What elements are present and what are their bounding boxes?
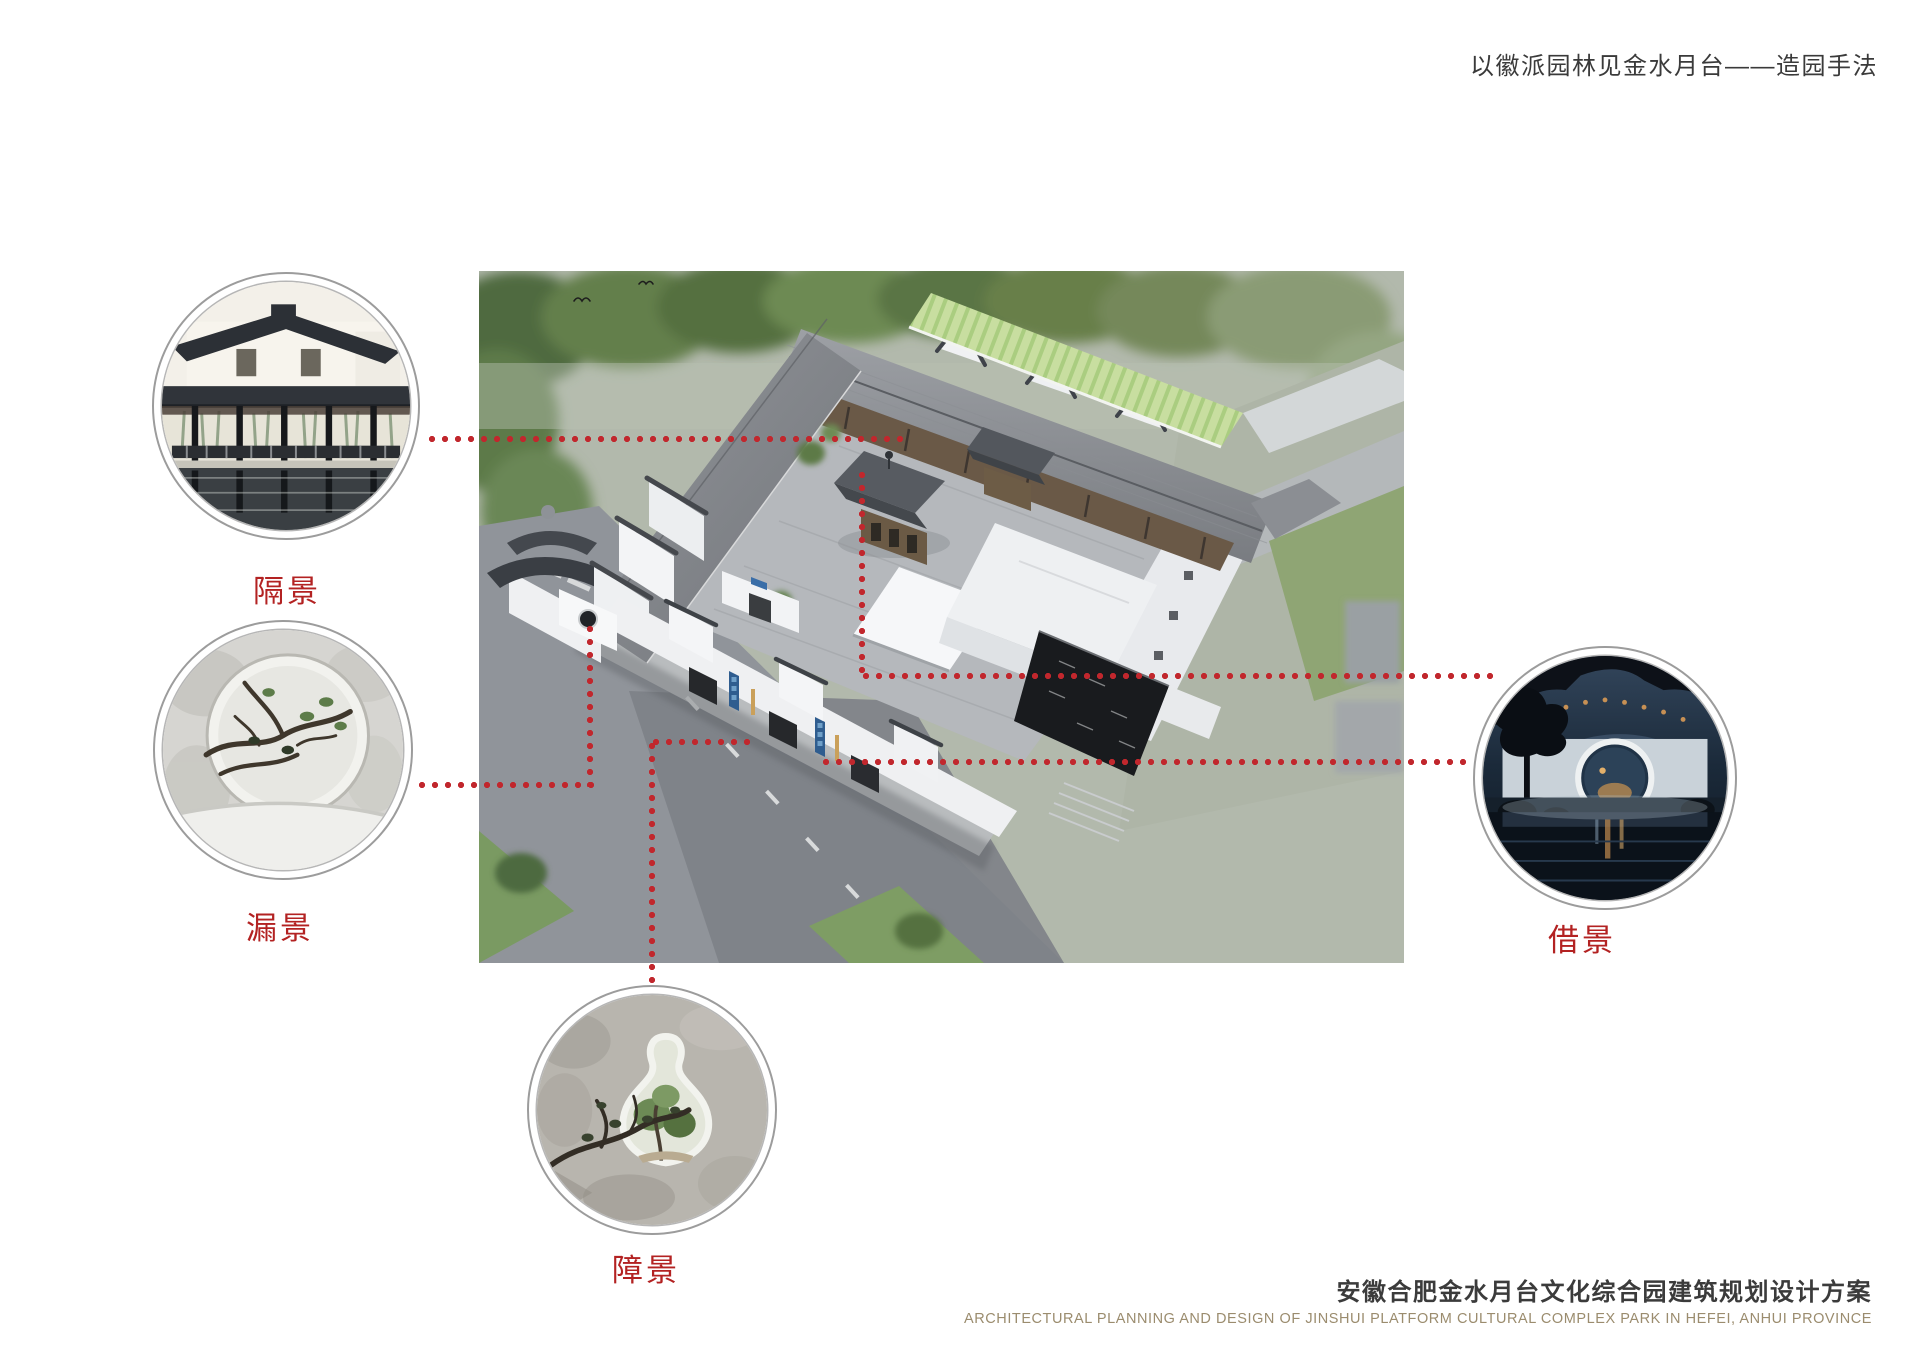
dotted-connector-jiejing-v [858, 471, 866, 679]
callout-label-loujing: 漏景 [246, 903, 314, 948]
dotted-connector-gejing [428, 435, 906, 443]
presentation-slide: 以徽派园林见金水月台——造园手法 [0, 0, 1920, 1358]
dotted-connector-jiejing-upper [862, 672, 1495, 680]
vase-shaped-doorway-plants-photo [537, 995, 767, 1225]
page-title: 以徽派园林见金水月台——造园手法 [1470, 46, 1878, 81]
dotted-connector-loujing-v [586, 625, 594, 787]
dotted-connector-loujing-h [418, 781, 594, 789]
footer: 安徽合肥金水月台文化综合园建筑规划设计方案 ARCHITECTURAL PLAN… [964, 1272, 1872, 1327]
callout-circle-loujing [153, 620, 413, 880]
dotted-connector-zhangjing-h [652, 738, 752, 746]
round-lattice-window-branches-photo [163, 630, 403, 870]
callout-circle-gejing [152, 272, 420, 540]
project-title-cn: 安徽合肥金水月台文化综合园建筑规划设计方案 [964, 1272, 1872, 1307]
moon-gate-night-courtyard-photo [1483, 656, 1727, 900]
callout-circle-zhangjing [527, 985, 777, 1235]
dotted-connector-jiejing-lower [822, 758, 1467, 766]
aerial-rendering-scene [479, 271, 1404, 963]
callout-label-jiejing: 借景 [1548, 915, 1616, 960]
callout-label-zhangjing: 障景 [612, 1245, 680, 1290]
callout-circle-jiejing [1473, 646, 1737, 910]
aerial-rendering [479, 271, 1404, 963]
project-title-en: ARCHITECTURAL PLANNING AND DESIGN OF JIN… [964, 1311, 1872, 1327]
covered-corridor-waterside-photo [162, 282, 410, 530]
dotted-connector-zhangjing-v [648, 742, 656, 987]
callout-label-gejing: 隔景 [253, 566, 321, 611]
